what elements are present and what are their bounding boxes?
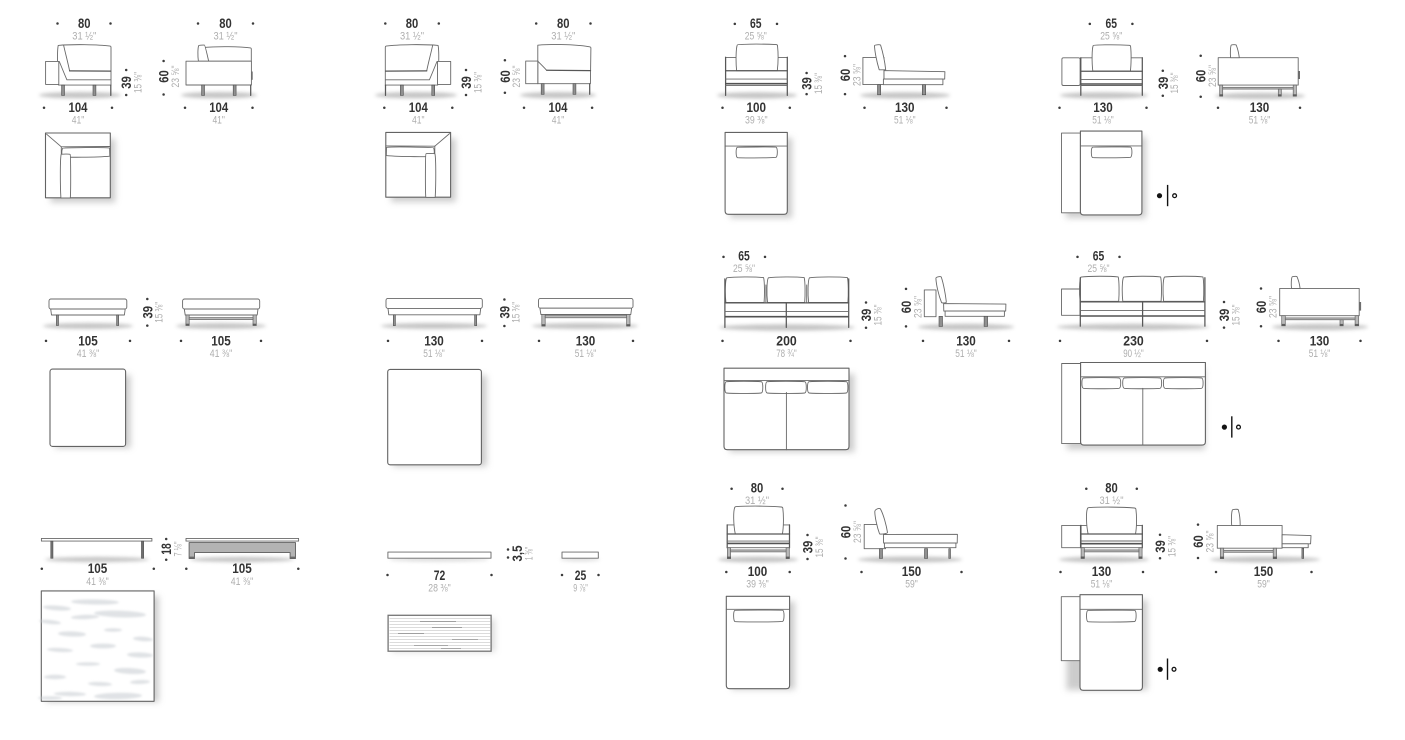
svg-text:130: 130 — [1092, 563, 1112, 579]
svg-text:90 ½": 90 ½" — [1123, 348, 1144, 360]
svg-text:51 ⅛": 51 ⅛" — [1091, 579, 1113, 591]
svg-text:72: 72 — [434, 567, 446, 583]
svg-text:150: 150 — [902, 563, 922, 579]
svg-text:130: 130 — [1093, 99, 1113, 115]
svg-text:39 ⅜": 39 ⅜" — [745, 114, 768, 126]
svg-text:130: 130 — [576, 332, 596, 348]
svg-text:130: 130 — [1310, 332, 1330, 348]
svg-text:51 ⅛": 51 ⅛" — [894, 114, 916, 126]
svg-text:105: 105 — [211, 332, 231, 348]
svg-text:78 ¾": 78 ¾" — [776, 348, 797, 360]
svg-text:31 ½": 31 ½" — [72, 31, 96, 43]
svg-text:1 ⅜": 1 ⅜" — [523, 547, 535, 561]
svg-text:31 ½": 31 ½" — [745, 495, 769, 507]
svg-text:104: 104 — [409, 99, 428, 115]
svg-text:41 ⅜": 41 ⅜" — [86, 576, 109, 588]
svg-text:15 ⅜": 15 ⅜" — [1169, 72, 1181, 93]
svg-text:15 ⅜": 15 ⅜" — [472, 72, 484, 93]
svg-text:80: 80 — [78, 15, 91, 31]
svg-text:51 ⅛": 51 ⅛" — [575, 348, 597, 360]
svg-text:41 ⅜": 41 ⅜" — [77, 348, 100, 360]
svg-text:15 ⅜": 15 ⅜" — [154, 302, 166, 323]
svg-text:59": 59" — [905, 579, 918, 591]
svg-text:25: 25 — [575, 567, 587, 583]
svg-text:23 ⅝": 23 ⅝" — [852, 521, 864, 543]
svg-text:31 ½": 31 ½" — [400, 31, 424, 43]
svg-text:130: 130 — [424, 332, 444, 348]
svg-text:28 ⅜": 28 ⅜" — [428, 583, 451, 595]
svg-text:7 ⅛": 7 ⅛" — [173, 541, 185, 556]
svg-text:65: 65 — [1106, 15, 1118, 31]
svg-text:23 ⅝": 23 ⅝" — [1207, 65, 1219, 87]
svg-text:41 ⅜": 41 ⅜" — [231, 576, 254, 588]
svg-text:23 ⅝": 23 ⅝" — [1267, 296, 1279, 318]
svg-text:51 ⅛": 51 ⅛" — [1249, 114, 1271, 126]
svg-text:9 ⅞": 9 ⅞" — [573, 583, 588, 595]
svg-text:104: 104 — [209, 99, 228, 115]
svg-text:41": 41" — [552, 114, 565, 126]
svg-text:41": 41" — [412, 114, 425, 126]
svg-text:23 ⅝": 23 ⅝" — [851, 64, 863, 86]
svg-text:65: 65 — [750, 15, 762, 31]
svg-text:39 ⅜": 39 ⅜" — [746, 579, 769, 591]
svg-text:41": 41" — [72, 114, 85, 126]
svg-text:15 ⅜": 15 ⅜" — [1166, 536, 1178, 557]
svg-text:150: 150 — [1254, 563, 1274, 579]
svg-text:15 ⅜": 15 ⅜" — [1230, 304, 1242, 325]
svg-text:80: 80 — [406, 15, 419, 31]
svg-text:130: 130 — [956, 332, 976, 348]
svg-text:105: 105 — [78, 332, 98, 348]
svg-text:41 ⅜": 41 ⅜" — [210, 348, 233, 360]
svg-text:65: 65 — [738, 248, 750, 264]
svg-text:100: 100 — [748, 563, 768, 579]
svg-text:130: 130 — [1250, 99, 1270, 115]
svg-text:25 ⅝": 25 ⅝" — [1088, 263, 1110, 275]
svg-text:104: 104 — [549, 99, 568, 115]
svg-text:23 ⅝": 23 ⅝" — [170, 65, 182, 87]
svg-text:80: 80 — [219, 15, 232, 31]
svg-text:80: 80 — [1105, 479, 1118, 495]
svg-text:23 ⅝": 23 ⅝" — [511, 65, 523, 87]
svg-text:31 ½": 31 ½" — [1100, 495, 1124, 507]
svg-text:105: 105 — [88, 560, 108, 576]
svg-text:25 ⅝": 25 ⅝" — [745, 31, 767, 43]
svg-text:59": 59" — [1257, 579, 1270, 591]
svg-text:25 ⅝": 25 ⅝" — [1100, 31, 1122, 43]
svg-text:51 ⅛": 51 ⅛" — [955, 348, 977, 360]
svg-text:80: 80 — [557, 15, 570, 31]
svg-text:100: 100 — [747, 99, 767, 115]
svg-text:15 ⅜": 15 ⅜" — [133, 72, 145, 93]
svg-text:31 ½": 31 ½" — [551, 31, 575, 43]
svg-text:41": 41" — [212, 114, 225, 126]
svg-text:15 ⅜": 15 ⅜" — [813, 73, 825, 94]
svg-text:15 ⅜": 15 ⅜" — [814, 536, 826, 557]
svg-text:15 ⅜": 15 ⅜" — [511, 302, 523, 323]
svg-text:31 ½": 31 ½" — [214, 31, 238, 43]
svg-text:80: 80 — [751, 479, 764, 495]
svg-text:230: 230 — [1123, 332, 1144, 348]
svg-text:51 ⅛": 51 ⅛" — [1309, 348, 1331, 360]
svg-text:51 ⅛": 51 ⅛" — [1092, 114, 1114, 126]
svg-text:23 ⅝": 23 ⅝" — [912, 296, 924, 318]
svg-text:65: 65 — [1093, 248, 1105, 264]
svg-text:104: 104 — [69, 99, 88, 115]
svg-text:200: 200 — [776, 332, 797, 348]
svg-text:51 ⅛": 51 ⅛" — [423, 348, 445, 360]
svg-text:105: 105 — [232, 560, 252, 576]
svg-text:15 ⅜": 15 ⅜" — [872, 304, 884, 325]
svg-text:23 ⅝": 23 ⅝" — [1204, 530, 1216, 552]
svg-text:130: 130 — [895, 99, 915, 115]
svg-text:25 ⅝": 25 ⅝" — [733, 263, 755, 275]
